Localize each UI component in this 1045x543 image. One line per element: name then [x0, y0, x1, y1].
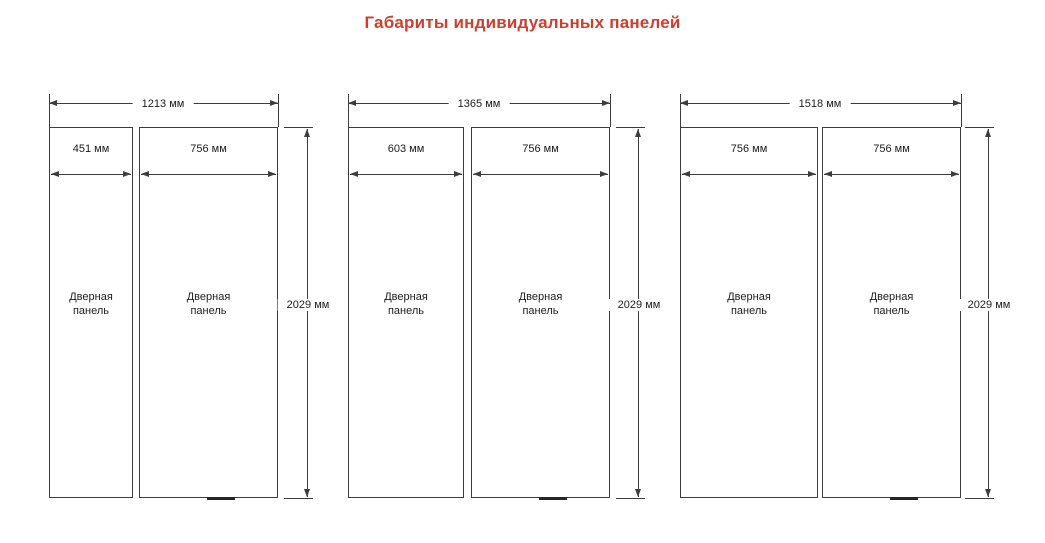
- dimension-arrow-right-icon: [270, 100, 278, 106]
- height-label: 2029 мм: [278, 299, 339, 311]
- panel-name-label: Дверная панель: [50, 290, 132, 318]
- height-extension-line-top: [616, 127, 645, 128]
- extension-line-left: [49, 94, 50, 127]
- dimension-arrow-right-icon: [951, 171, 959, 177]
- panel-width-dimension-line: [473, 174, 608, 175]
- height-label: 2029 мм: [609, 299, 670, 311]
- dimension-arrow-right-icon: [454, 171, 462, 177]
- dimension-arrow-left-icon: [51, 171, 59, 177]
- dimension-arrow-left-icon: [141, 171, 149, 177]
- height-extension-line-bottom: [616, 498, 645, 499]
- door-panel-right: 756 мм Дверная панель: [471, 127, 610, 498]
- dimension-arrow-left-icon: [824, 171, 832, 177]
- panel-width-label: 603 мм: [349, 143, 463, 155]
- panel-name-label: Дверная панель: [472, 290, 609, 318]
- door-sill-mark: [890, 497, 918, 500]
- panel-name-label: Дверная панель: [823, 290, 960, 318]
- dimension-arrow-up-icon: [985, 129, 991, 137]
- diagram-canvas: Габариты индивидуальных панелей 1213 мм …: [0, 0, 1045, 543]
- height-extension-line-bottom: [965, 498, 994, 499]
- height-extension-line-top: [284, 127, 313, 128]
- door-panel-left: 451 мм Дверная панель: [49, 127, 133, 498]
- panel-name-label: Дверная панель: [349, 290, 463, 318]
- extension-line-left: [680, 94, 681, 127]
- total-width-label: 1518 мм: [790, 98, 851, 110]
- panel-width-label: 756 мм: [823, 143, 960, 155]
- dimension-arrow-left-icon: [680, 100, 688, 106]
- height-dimension-line: [638, 129, 639, 497]
- dimension-arrow-left-icon: [350, 171, 358, 177]
- panel-name-label: Дверная панель: [681, 290, 817, 318]
- height-extension-line-top: [965, 127, 994, 128]
- total-width-label: 1213 мм: [133, 98, 194, 110]
- extension-line-left: [348, 94, 349, 127]
- panel-width-dimension-line: [51, 174, 131, 175]
- height-dimension-line: [988, 129, 989, 497]
- dimension-arrow-left-icon: [348, 100, 356, 106]
- dimension-arrow-right-icon: [600, 171, 608, 177]
- panel-width-dimension-line: [682, 174, 816, 175]
- dimension-arrow-right-icon: [123, 171, 131, 177]
- door-panel-left: 756 мм Дверная панель: [680, 127, 818, 498]
- dimension-arrow-down-icon: [304, 489, 310, 497]
- dimension-arrow-right-icon: [808, 171, 816, 177]
- dimension-arrow-right-icon: [268, 171, 276, 177]
- dimension-arrow-left-icon: [682, 171, 690, 177]
- dimension-arrow-down-icon: [985, 489, 991, 497]
- extension-line-right: [961, 94, 962, 127]
- dimension-arrow-up-icon: [304, 129, 310, 137]
- height-dimension-line: [307, 129, 308, 497]
- panel-width-dimension-line: [141, 174, 276, 175]
- panel-width-label: 451 мм: [50, 143, 132, 155]
- dimension-arrow-left-icon: [49, 100, 57, 106]
- extension-line-right: [610, 94, 611, 127]
- total-width-label: 1365 мм: [449, 98, 510, 110]
- dimension-arrow-left-icon: [473, 171, 481, 177]
- diagram-title: Габариты индивидуальных панелей: [0, 13, 1045, 33]
- dimension-arrow-up-icon: [635, 129, 641, 137]
- panel-width-dimension-line: [824, 174, 959, 175]
- door-panel-left: 603 мм Дверная панель: [348, 127, 464, 498]
- dimension-arrow-down-icon: [635, 489, 641, 497]
- height-extension-line-bottom: [284, 498, 313, 499]
- dimension-arrow-right-icon: [602, 100, 610, 106]
- panel-width-label: 756 мм: [681, 143, 817, 155]
- height-label: 2029 мм: [959, 299, 1020, 311]
- panel-name-label: Дверная панель: [140, 290, 277, 318]
- panel-width-label: 756 мм: [472, 143, 609, 155]
- panel-width-label: 756 мм: [140, 143, 277, 155]
- door-panel-right: 756 мм Дверная панель: [822, 127, 961, 498]
- door-panel-right: 756 мм Дверная панель: [139, 127, 278, 498]
- dimension-arrow-right-icon: [953, 100, 961, 106]
- door-sill-mark: [539, 497, 567, 500]
- door-sill-mark: [207, 497, 235, 500]
- panel-width-dimension-line: [350, 174, 462, 175]
- extension-line-right: [278, 94, 279, 127]
